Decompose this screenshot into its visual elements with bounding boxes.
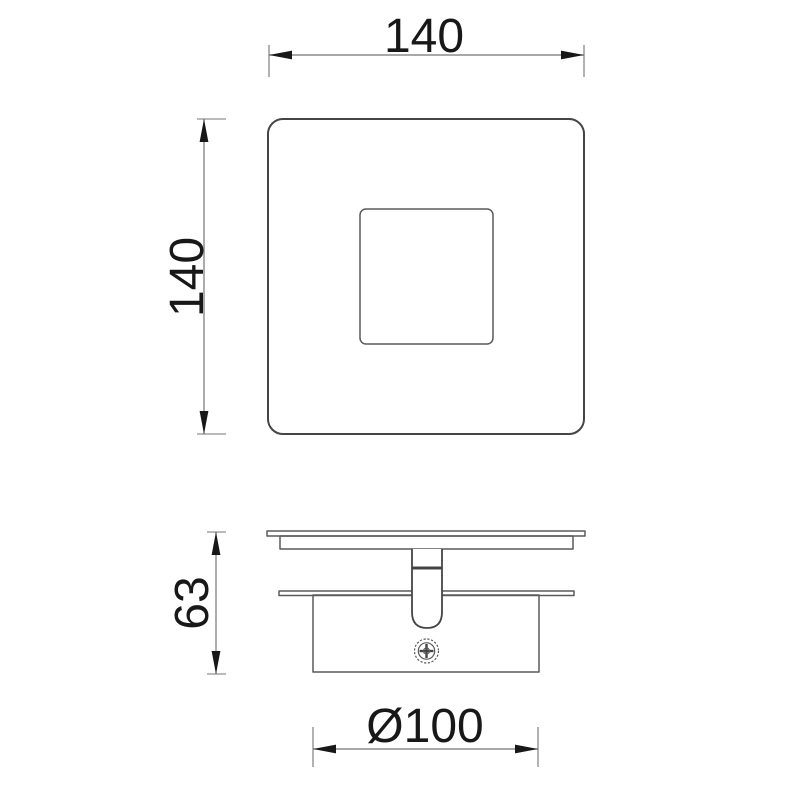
connector-stem: [412, 549, 442, 628]
arrow-down-icon: [200, 411, 209, 434]
arrow-right-icon: [561, 51, 584, 60]
arrow-right-icon: [515, 745, 538, 754]
side-panel-frame: [280, 536, 573, 549]
arrow-left-icon: [313, 745, 336, 754]
side-view: [267, 531, 585, 672]
dimension-drawing: 140 140: [0, 0, 800, 800]
arrow-left-icon: [269, 51, 292, 60]
depth-dimension: 63: [166, 532, 226, 674]
front-view: [268, 119, 584, 434]
depth-dimension-label: 63: [166, 576, 219, 629]
width-dimension-label: 140: [384, 10, 464, 63]
front-panel-outline: [268, 119, 584, 434]
width-dimension: 140: [269, 10, 584, 77]
screw-head: [415, 639, 439, 663]
diameter-dimension: Ø100: [313, 700, 538, 767]
height-dimension-label: 140: [161, 237, 214, 317]
diameter-dimension-label: Ø100: [366, 700, 483, 753]
front-inner-panel-outline: [360, 209, 493, 344]
arrow-up-icon: [200, 119, 209, 142]
arrow-down-icon: [212, 651, 221, 674]
drawing-canvas: 140 140: [0, 0, 800, 800]
arrow-up-icon: [212, 532, 221, 555]
height-dimension: 140: [161, 119, 226, 434]
